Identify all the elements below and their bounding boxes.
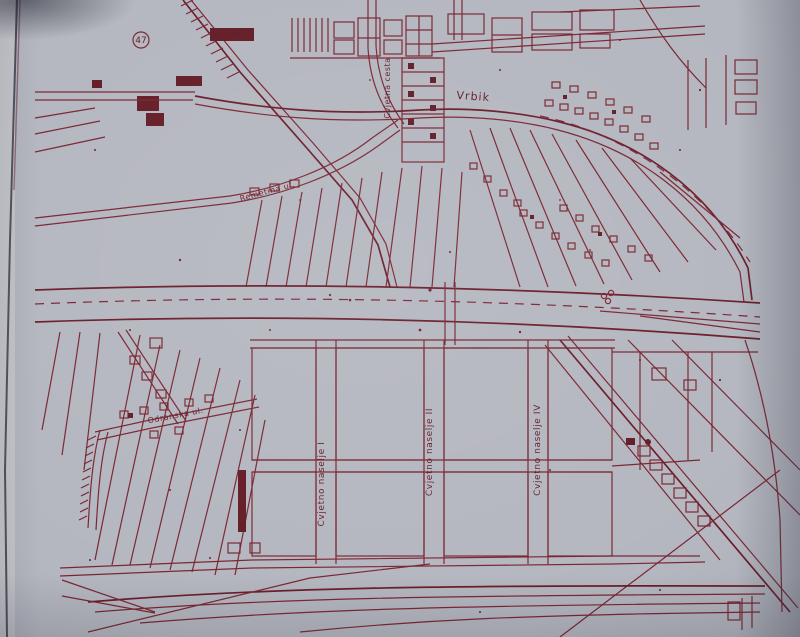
street-label-cvjetno-naselje-4: Cvjetno naselje IV <box>533 404 543 496</box>
bottom-railway-lines <box>62 564 765 632</box>
map-marker-47: 47 <box>133 32 149 48</box>
left-strip-lines <box>35 108 105 152</box>
district-label-vrbik: Vrbik <box>456 89 490 104</box>
grid-south-street <box>60 556 705 576</box>
lower-right-parcels <box>545 336 800 637</box>
map-sheet: 47 <box>0 0 800 637</box>
top-right-parcels <box>640 0 757 130</box>
upper-district: 47 <box>35 0 757 302</box>
road-label-odranska: Odranska ul. <box>147 406 204 426</box>
map-labels: Vrbik Cvjetna cesta Remetina ul. Odransk… <box>147 57 543 526</box>
nw-diagonal-road <box>118 330 186 424</box>
dark-building-bar <box>238 470 246 532</box>
marker-47-label: 47 <box>135 36 146 46</box>
street-left-horizontal <box>35 92 195 100</box>
road-label-remetina: Remetina ul. <box>239 180 296 203</box>
savska-diagonal-road <box>545 336 800 612</box>
right-arc-road <box>745 340 782 612</box>
vrbik-fan-parcels <box>470 128 740 287</box>
remetina-road <box>35 120 400 226</box>
map-photo: 47 <box>0 0 800 637</box>
paper-speckles <box>89 39 721 613</box>
street-label-cvjetno-naselje-2: Cvjetno naselje II <box>425 408 435 496</box>
ladder-parcels <box>638 446 710 526</box>
lower-left-parcels <box>42 330 265 575</box>
book-page-edge <box>0 0 20 637</box>
street-label-cvjetna-cesta: Cvjetna cesta <box>383 57 392 118</box>
railway-band <box>35 282 760 345</box>
band-crossing-street <box>445 282 455 345</box>
street-label-cvjetno-naselje-1: Cvjetno naselje I <box>317 442 327 527</box>
signal-symbol <box>601 290 613 303</box>
houses-along-curve <box>545 82 658 149</box>
top-city-blocks <box>290 0 705 58</box>
